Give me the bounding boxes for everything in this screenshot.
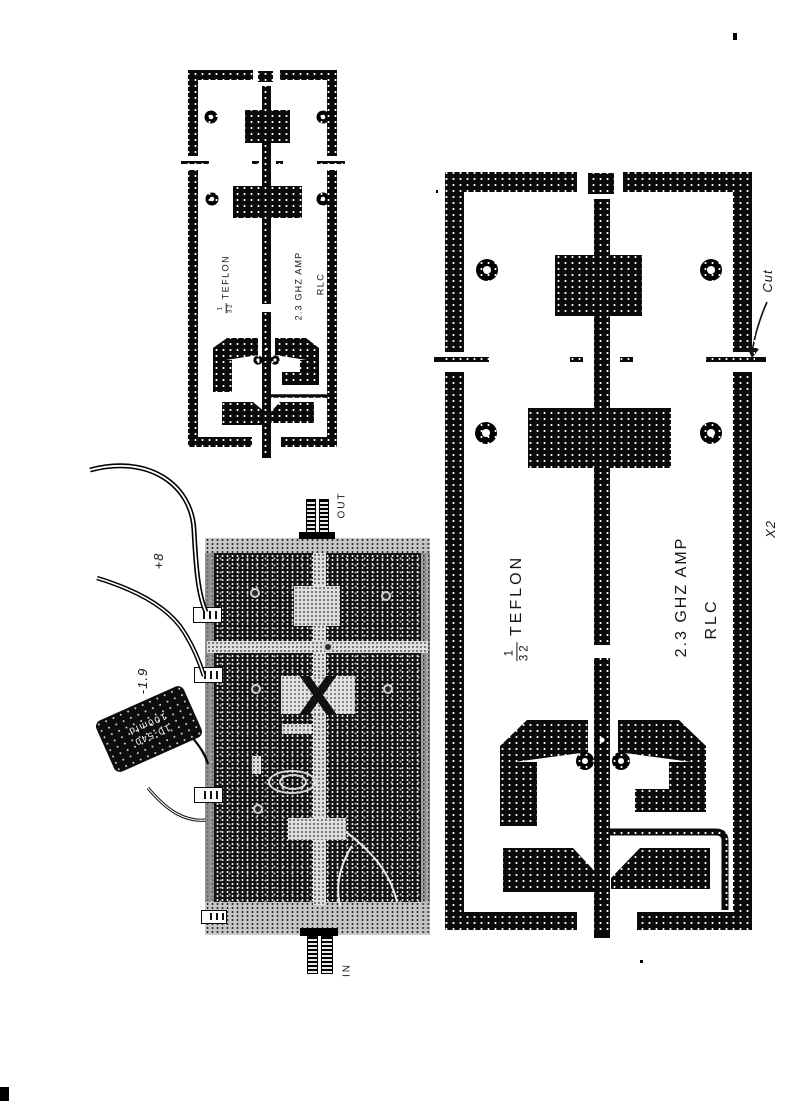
scanned-document-page: 132TEFLON 2.3 GHZ AMP RLC xyxy=(0,0,792,1108)
material-label-large: 132TEFLON xyxy=(503,555,530,661)
out-port-label: OUT xyxy=(338,491,349,518)
board-title-large: 2.3 GHZ AMP xyxy=(674,537,690,658)
brand-label-small: RLC xyxy=(316,273,325,296)
scan-edge-mark xyxy=(0,1087,9,1101)
material-label-small: 132TEFLON xyxy=(218,255,235,313)
pcb-artwork-large xyxy=(425,160,785,950)
inside-wire xyxy=(346,832,397,902)
ground-wire xyxy=(148,788,206,820)
scan-speck xyxy=(733,33,737,40)
inside-wire xyxy=(338,846,352,906)
capacitor-marking: 10-540 100mfd xyxy=(126,710,173,748)
quantity-annotation: X2 xyxy=(763,520,777,538)
scan-speck xyxy=(436,190,438,193)
board-title-small: 2.3 GHZ AMP xyxy=(294,252,303,321)
negative-supply-label: -1.9 xyxy=(135,668,149,694)
scan-speck xyxy=(640,960,643,963)
positive-supply-wire xyxy=(90,466,206,612)
brand-label-large: RLC xyxy=(704,598,720,639)
in-port-label: IN xyxy=(343,963,354,977)
thickness-fraction: 132 xyxy=(218,303,235,313)
positive-supply-label: +8 xyxy=(151,553,165,570)
cut-annotation: Cut xyxy=(760,269,774,292)
negative-supply-wire xyxy=(97,578,204,676)
thickness-fraction: 132 xyxy=(503,642,530,661)
pcb-artwork-small xyxy=(178,58,352,468)
capacitor-lead xyxy=(192,737,208,764)
